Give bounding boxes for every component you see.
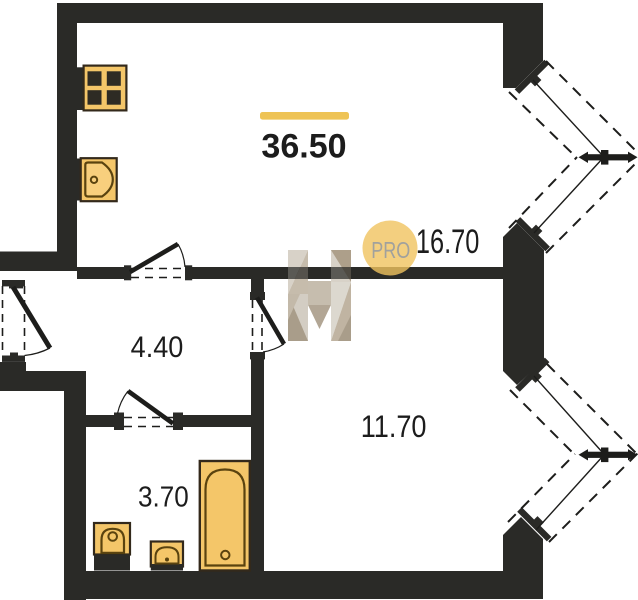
svg-text:36.50: 36.50 [261,128,346,166]
svg-text:4.40: 4.40 [131,331,184,364]
svg-text:PRO: PRO [371,237,410,263]
svg-text:3.70: 3.70 [138,481,189,513]
svg-text:16.70: 16.70 [416,223,480,261]
svg-text:11.70: 11.70 [361,408,427,444]
